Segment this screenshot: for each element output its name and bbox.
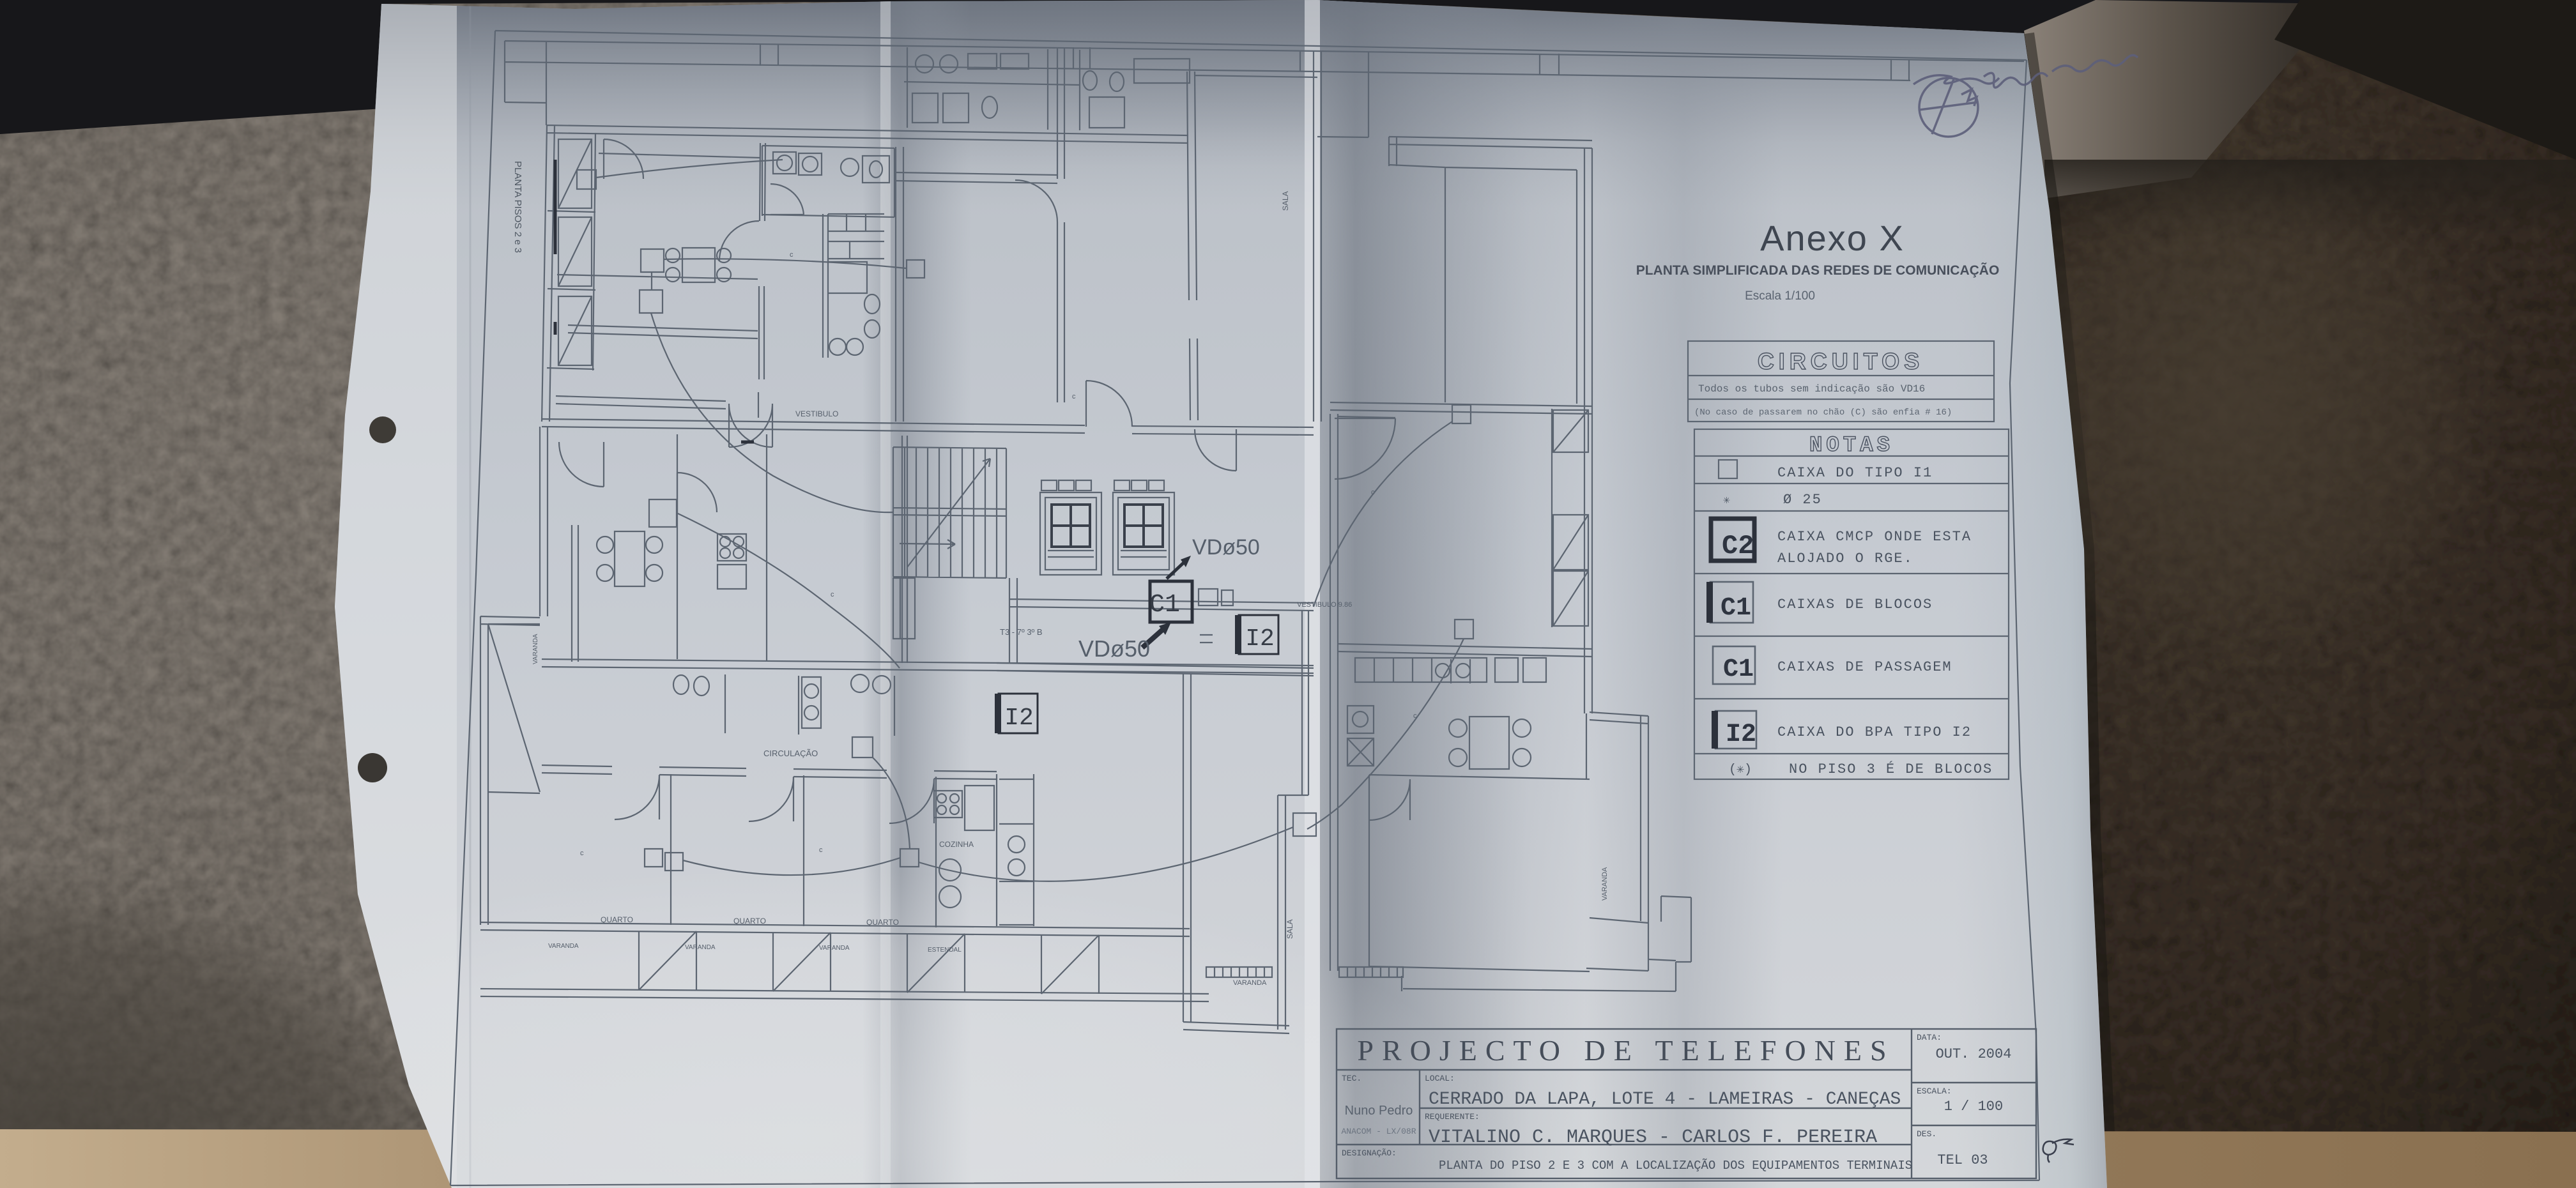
- svg-text:c: c: [831, 591, 834, 598]
- svg-text:I2: I2: [1004, 704, 1034, 732]
- svg-text:TEL 03: TEL 03: [1937, 1152, 1988, 1168]
- svg-text:CAIXA DO BPA TIPO I2: CAIXA DO BPA TIPO I2: [1777, 724, 1972, 740]
- svg-text:DESIGNAÇÃO:: DESIGNAÇÃO:: [1342, 1148, 1397, 1158]
- svg-text:VARANDA: VARANDA: [819, 945, 850, 952]
- svg-text:C2: C2: [1722, 531, 1754, 561]
- svg-text:c: c: [819, 846, 823, 854]
- svg-text:VARANDA: VARANDA: [1233, 979, 1267, 987]
- svg-text:c: c: [1371, 489, 1375, 496]
- svg-text:VARANDA: VARANDA: [685, 944, 716, 951]
- svg-text:c: c: [1413, 712, 1417, 720]
- svg-text:VESTIBULO 9.86: VESTIBULO 9.86: [1297, 601, 1352, 609]
- svg-text:PLANTA PISOS 2 e 3: PLANTA PISOS 2 e 3: [512, 161, 523, 253]
- svg-text:Anexo X: Anexo X: [1760, 218, 1905, 258]
- svg-text:c: c: [580, 849, 584, 857]
- svg-text:TEC.: TEC.: [1342, 1074, 1361, 1083]
- svg-text:PROJECTO DE TELEFONES: PROJECTO DE TELEFONES: [1357, 1034, 1894, 1067]
- svg-text:C1: C1: [1149, 591, 1180, 620]
- svg-text:PLANTA SIMPLIFICADA DAS REDES: PLANTA SIMPLIFICADA DAS REDES DE COMUNIC…: [1636, 263, 2000, 278]
- svg-text:CAIXA DO TIPO I1: CAIXA DO TIPO I1: [1777, 465, 1933, 481]
- svg-text:REQUERENTE:: REQUERENTE:: [1425, 1112, 1480, 1122]
- svg-text:(✳): (✳): [1729, 763, 1752, 777]
- svg-text:VDø50: VDø50: [1078, 636, 1150, 662]
- svg-text:c: c: [790, 251, 793, 259]
- svg-text:1 / 100: 1 / 100: [1944, 1099, 2003, 1115]
- svg-text:QUARTO: QUARTO: [866, 918, 899, 927]
- svg-text:QUARTO: QUARTO: [733, 917, 766, 925]
- svg-text:CIRCULAÇÃO: CIRCULAÇÃO: [763, 749, 818, 758]
- svg-text:VITALINO C. MARQUES - CARLOS F: VITALINO C. MARQUES - CARLOS F. PEREIRA: [1429, 1127, 1877, 1148]
- svg-text:(No caso de passarem no chão (: (No caso de passarem no chão (C) são enf…: [1694, 407, 1952, 418]
- svg-text:VESTIBULO: VESTIBULO: [795, 409, 838, 418]
- svg-text:ANACOM - LX/08R: ANACOM - LX/08R: [1341, 1127, 1416, 1136]
- svg-text:T3 - 7º 3º B: T3 - 7º 3º B: [1000, 627, 1043, 637]
- svg-text:Escala 1/100: Escala 1/100: [1745, 289, 1815, 303]
- svg-text:CAIXAS DE BLOCOS: CAIXAS DE BLOCOS: [1777, 597, 1933, 613]
- svg-text:NO PISO 3 É DE BLOCOS: NO PISO 3 É DE BLOCOS: [1789, 761, 1993, 777]
- svg-text:QUARTO: QUARTO: [601, 915, 633, 924]
- svg-text:ESCALA:: ESCALA:: [1917, 1086, 1952, 1096]
- svg-text:I2: I2: [1726, 720, 1756, 749]
- svg-text:OUT. 2004: OUT. 2004: [1936, 1046, 2012, 1062]
- svg-text:CAIXA CMCP ONDE ESTA: CAIXA CMCP ONDE ESTA: [1777, 529, 1972, 545]
- svg-text:C1: C1: [1721, 594, 1751, 623]
- svg-text:Todos os tubos sem indicação s: Todos os tubos sem indicação são VD16: [1698, 383, 1925, 395]
- svg-text:SALA: SALA: [1281, 191, 1290, 211]
- svg-text:c: c: [1072, 393, 1076, 400]
- svg-text:SALA: SALA: [1285, 919, 1294, 939]
- svg-text:NOTAS: NOTAS: [1809, 434, 1894, 458]
- svg-text:ALOJADO O RGE.: ALOJADO O RGE.: [1777, 551, 1913, 567]
- svg-text:VARANDA: VARANDA: [548, 943, 579, 950]
- svg-text:C1: C1: [1723, 655, 1754, 684]
- svg-text:Nuno Pedro: Nuno Pedro: [1345, 1104, 1413, 1118]
- svg-text:CAIXAS DE PASSAGEM: CAIXAS DE PASSAGEM: [1777, 659, 1952, 675]
- svg-text:I2: I2: [1245, 625, 1275, 653]
- svg-text:VDø50: VDø50: [1192, 535, 1260, 560]
- svg-text:VARANDA: VARANDA: [1601, 867, 1609, 901]
- svg-text:DES.: DES.: [1917, 1129, 1936, 1139]
- svg-text:Ø 25: Ø 25: [1783, 492, 1822, 508]
- svg-text:PLANTA DO PISO 2 E 3 COM A LOC: PLANTA DO PISO 2 E 3 COM A LOCALIZAÇÃO D…: [1439, 1159, 1912, 1173]
- svg-text:✳: ✳: [1723, 494, 1730, 507]
- svg-text:LOCAL:: LOCAL:: [1425, 1074, 1455, 1083]
- svg-text:ESTENDAL: ESTENDAL: [928, 947, 962, 954]
- svg-text:CIRCUITOS: CIRCUITOS: [1758, 348, 1924, 374]
- svg-text:DATA:: DATA:: [1917, 1033, 1942, 1042]
- svg-text:COZINHA: COZINHA: [939, 840, 974, 849]
- svg-text:CERRADO DA LAPA, LOTE 4 - LAME: CERRADO DA LAPA, LOTE 4 - LAMEIRAS - CAN…: [1429, 1090, 1901, 1109]
- svg-text:VARANDA: VARANDA: [532, 634, 539, 664]
